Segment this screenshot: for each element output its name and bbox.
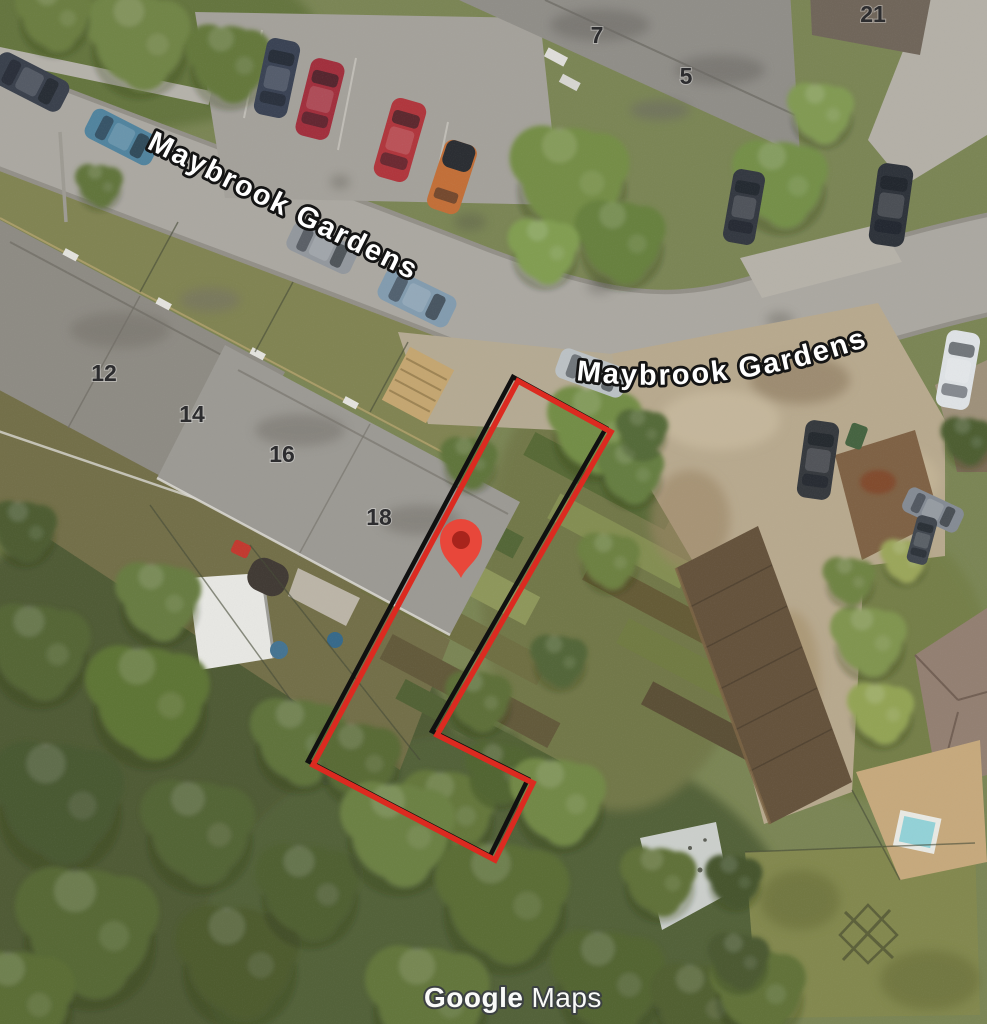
house-number: 14 [179,401,205,427]
pin-dot [452,531,470,549]
house-number: 21 [860,1,886,27]
house-number: 5 [680,63,693,89]
house-number: 18 [366,504,392,530]
house-number: 16 [269,441,295,467]
watermark-maps: Maps [531,982,601,1013]
aerial-basemap: 21 7 5 12 14 16 18 Maybrook Gardens Mayb… [0,0,987,1024]
house-number: 12 [91,360,117,386]
house-number: 7 [591,22,604,48]
watermark-google: Google [424,982,523,1013]
google-maps-watermark: GoogleMaps [424,982,602,1013]
satellite-map-canvas[interactable]: 21 7 5 12 14 16 18 Maybrook Gardens Mayb… [0,0,987,1024]
